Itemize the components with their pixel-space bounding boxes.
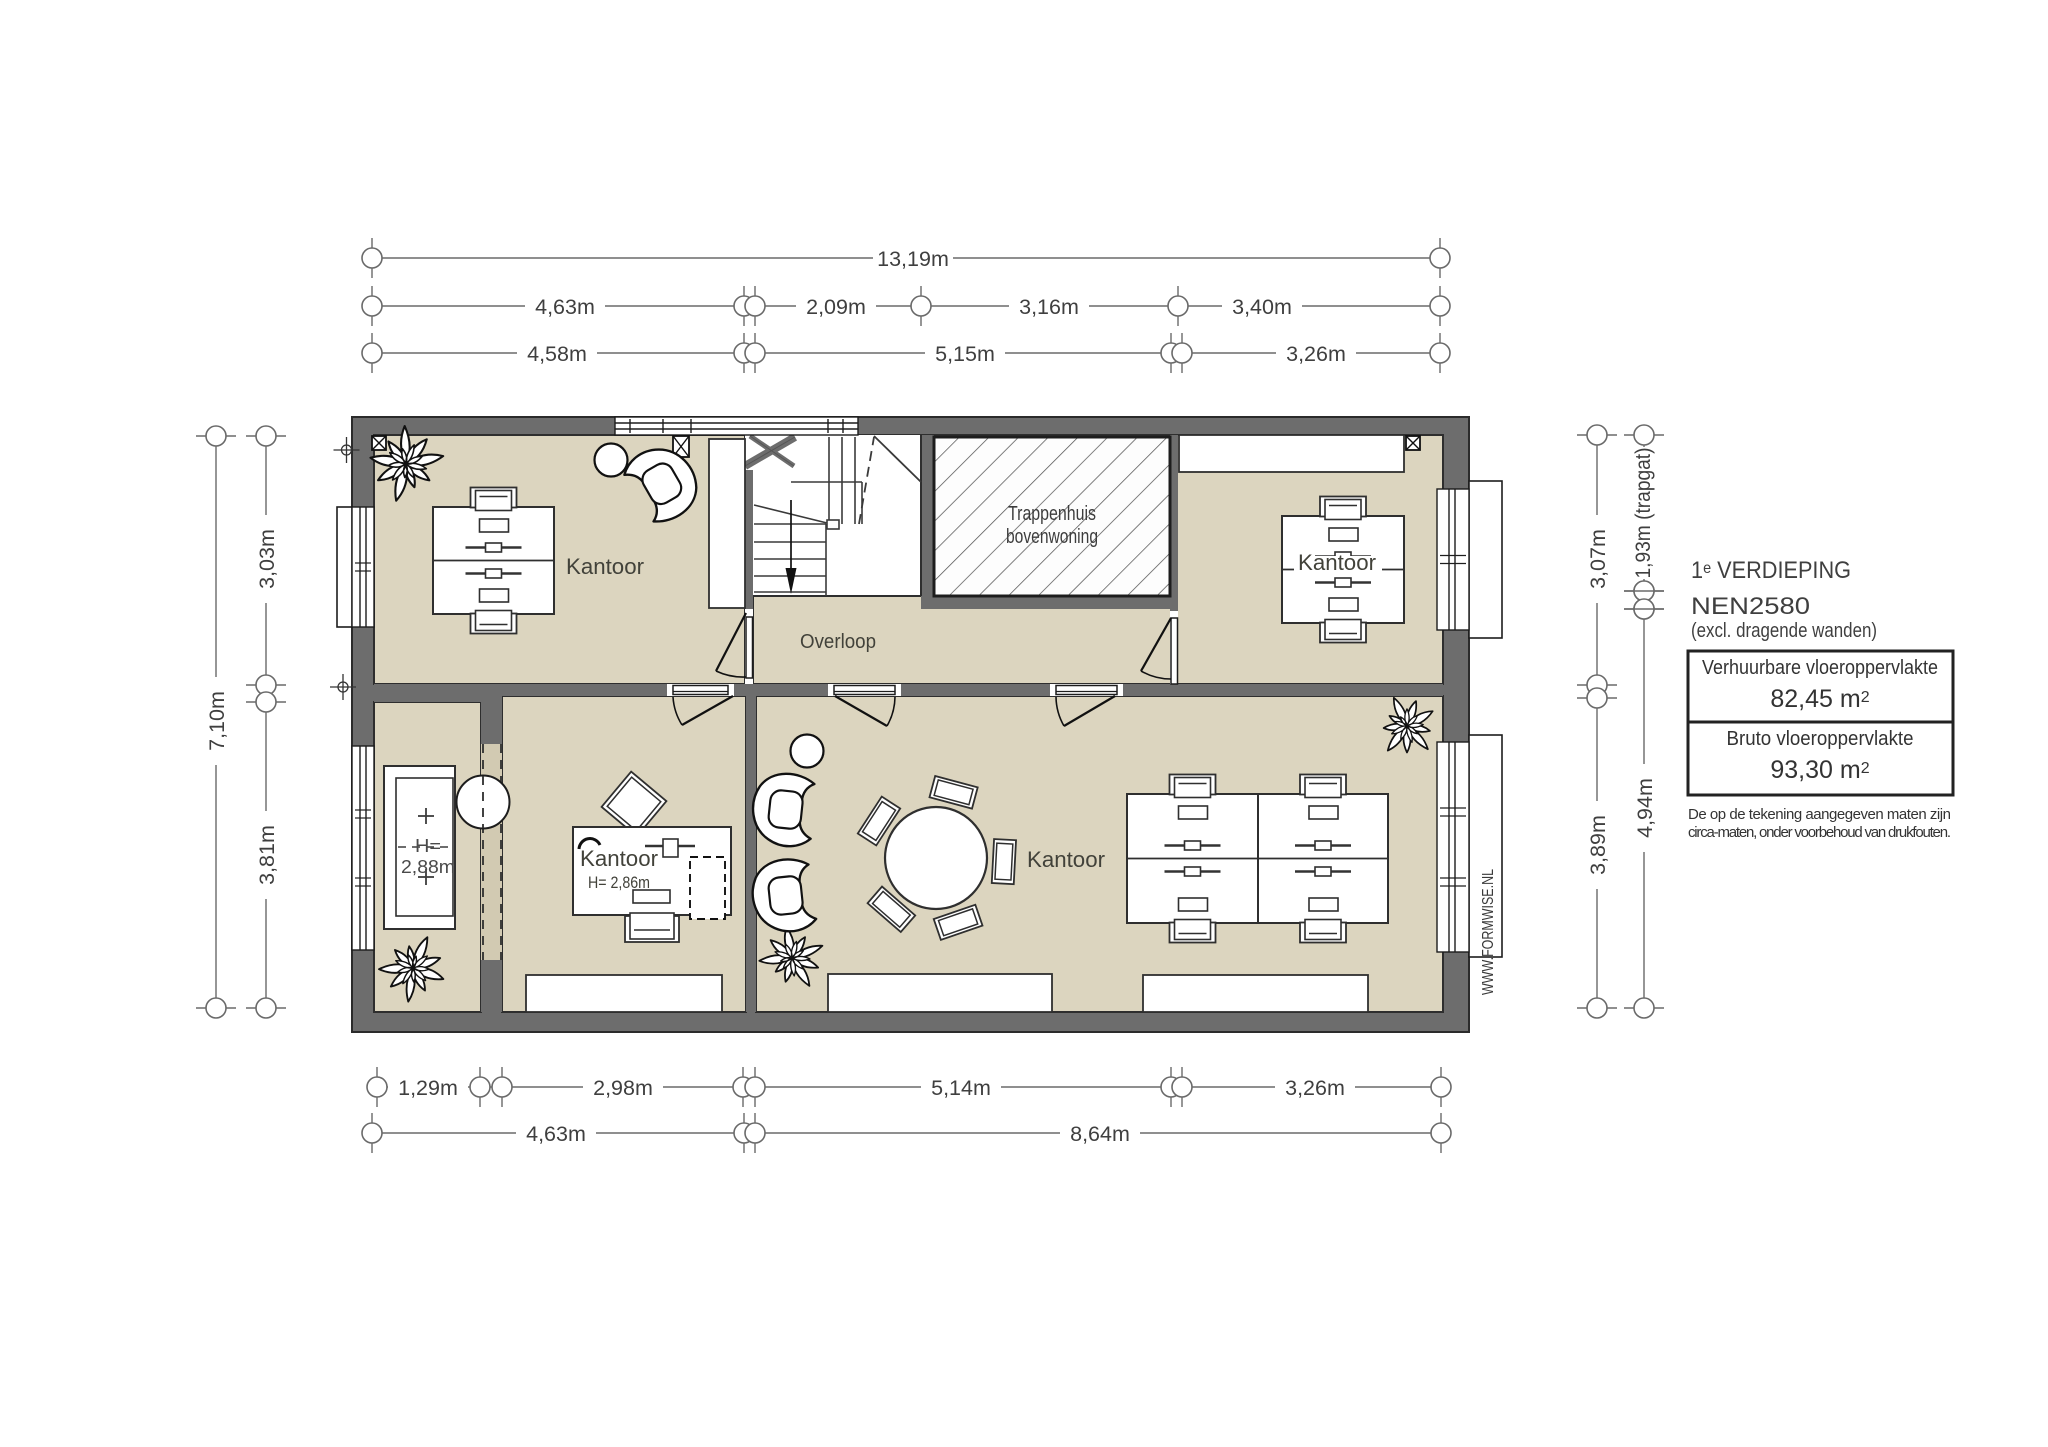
svg-text:Kantoor: Kantoor (566, 554, 644, 579)
svg-text:3,40m: 3,40m (1232, 295, 1292, 319)
svg-text:Kantoor: Kantoor (1298, 550, 1376, 575)
svg-text:4,63m: 4,63m (535, 295, 595, 319)
svg-text:4,94m: 4,94m (1633, 778, 1657, 838)
svg-text:Overloop: Overloop (800, 631, 876, 653)
svg-text:De op de tekening aangegeven m: De op de tekening aangegeven maten zijn (1688, 806, 1951, 823)
svg-text:4,63m: 4,63m (526, 1122, 586, 1146)
svg-text:1,93m (trapgat): 1,93m (trapgat) (1631, 448, 1655, 579)
svg-text:Bruto vloeroppervlakte: Bruto vloeroppervlakte (1727, 728, 1914, 750)
svg-text:2,88m: 2,88m (401, 857, 455, 877)
svg-text:3,26m: 3,26m (1286, 342, 1346, 366)
svg-text:1e VERDIEPING: 1e VERDIEPING (1691, 557, 1851, 584)
svg-text:82,45 m2: 82,45 m2 (1770, 685, 1869, 713)
svg-text:3,16m: 3,16m (1019, 295, 1079, 319)
svg-text:4,58m: 4,58m (527, 342, 587, 366)
svg-text:Kantoor: Kantoor (580, 846, 658, 871)
svg-text:8,64m: 8,64m (1070, 1122, 1130, 1146)
svg-text:3,26m: 3,26m (1285, 1076, 1345, 1100)
svg-text:circa-maten, onder voorbehoud: circa-maten, onder voorbehoud van drukfo… (1688, 824, 1951, 841)
svg-text:Verhuurbare vloeroppervlakte: Verhuurbare vloeroppervlakte (1702, 657, 1938, 679)
svg-text:(excl. dragende wanden): (excl. dragende wanden) (1691, 620, 1877, 642)
svg-text:Trappenhuis: Trappenhuis (1008, 503, 1096, 525)
svg-text:H=: H= (415, 836, 441, 856)
svg-text:NEN2580: NEN2580 (1691, 593, 1810, 620)
svg-text:H= 2,86m: H= 2,86m (588, 873, 650, 892)
svg-text:2,09m: 2,09m (806, 295, 866, 319)
svg-text:93,30 m2: 93,30 m2 (1770, 756, 1869, 784)
svg-text:Kantoor: Kantoor (1027, 847, 1105, 872)
svg-text:13,19m: 13,19m (877, 247, 949, 271)
svg-text:5,15m: 5,15m (935, 342, 995, 366)
svg-text:bovenwoning: bovenwoning (1006, 526, 1098, 548)
svg-text:2,98m: 2,98m (593, 1076, 653, 1100)
svg-text:3,07m: 3,07m (1586, 529, 1610, 589)
svg-text:5,14m: 5,14m (931, 1076, 991, 1100)
svg-text:3,81m: 3,81m (255, 825, 279, 885)
svg-text:WWW.FORMWISE.NL: WWW.FORMWISE.NL (1480, 869, 1497, 995)
svg-text:3,89m: 3,89m (1586, 815, 1610, 875)
svg-text:7,10m: 7,10m (205, 691, 229, 751)
svg-text:1,29m: 1,29m (398, 1076, 458, 1100)
svg-text:3,03m: 3,03m (255, 529, 279, 589)
